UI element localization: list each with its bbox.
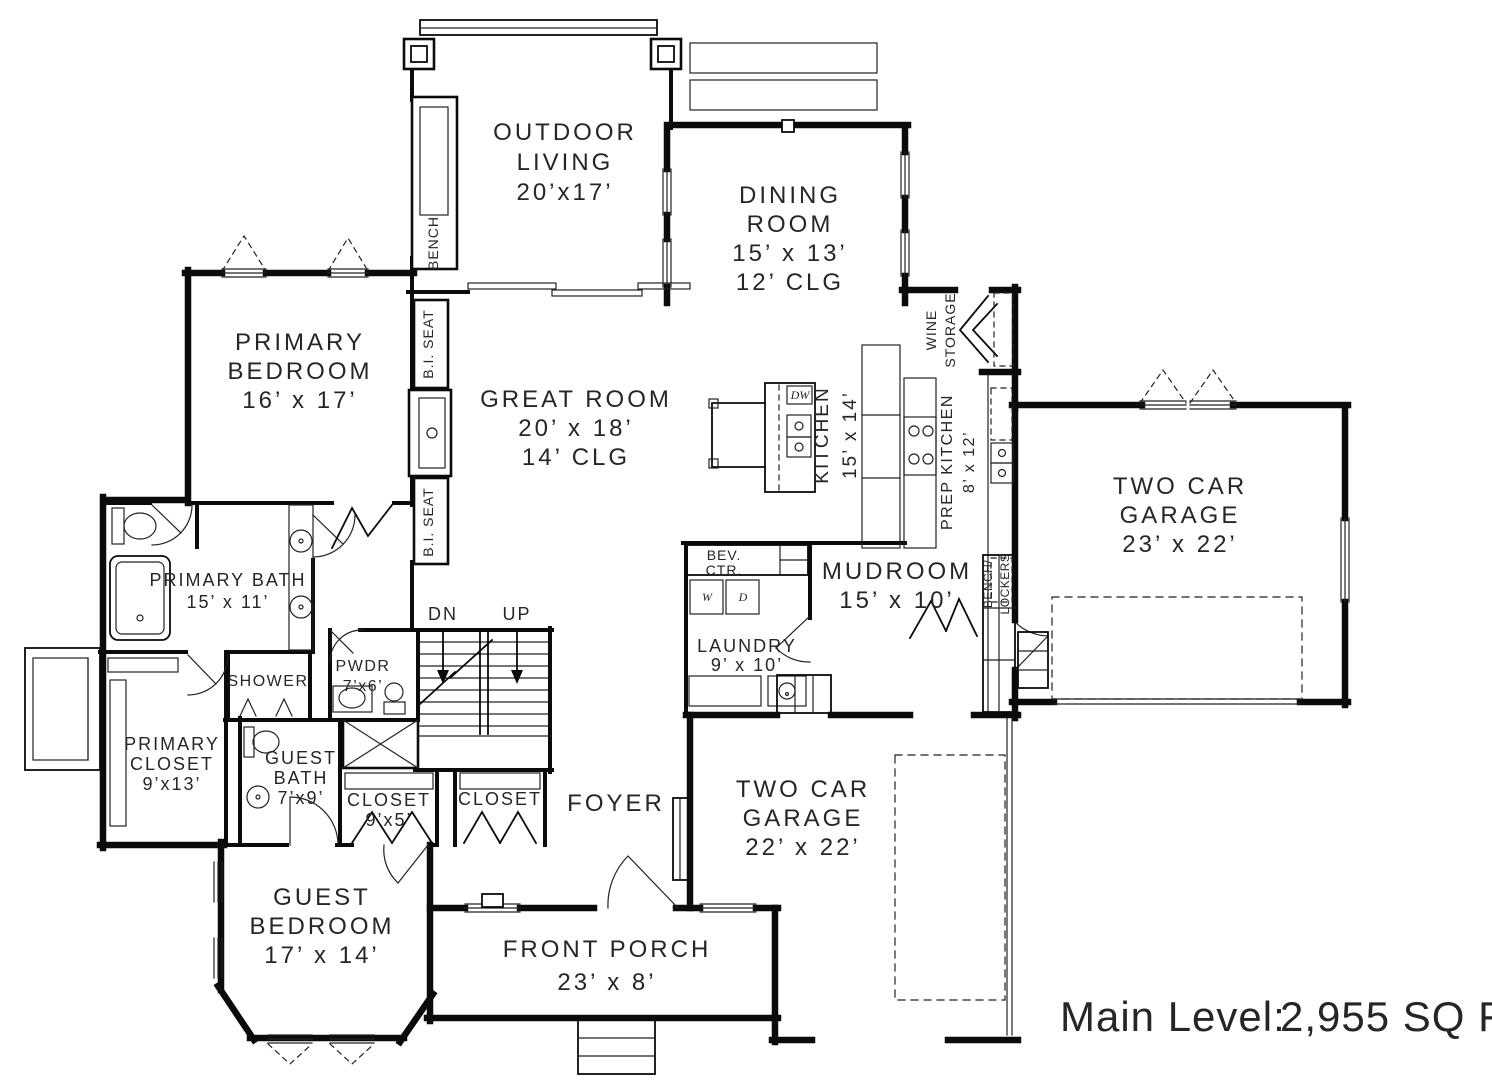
garage-door-track-front [895, 755, 1005, 1000]
svg-text:CTR.: CTR. [706, 562, 743, 578]
label-great-room: GREAT ROOM [480, 386, 672, 413]
svg-text:17’ x 14’: 17’ x 14’ [264, 942, 380, 969]
label-bench: BENCH [425, 216, 441, 270]
porch-steps [578, 1020, 655, 1074]
label-dryer: D [738, 590, 748, 604]
label-washer: W [702, 590, 713, 604]
dining-post [782, 120, 794, 132]
svg-text:BEDROOM: BEDROOM [249, 913, 394, 940]
svg-text:7’x6’: 7’x6’ [343, 678, 383, 695]
up-arrow [511, 670, 523, 684]
svg-text:15’ x 14’: 15’ x 14’ [840, 391, 861, 479]
stairs [418, 630, 550, 736]
main-level-label: Main Level: [1060, 993, 1286, 1040]
svg-text:20’ x 18’: 20’ x 18’ [518, 415, 634, 442]
label-primary-closet: PRIMARY [124, 734, 220, 754]
label-primary-bedroom: PRIMARY [235, 329, 365, 356]
garage-doors [895, 597, 1302, 1035]
covered-deck [690, 43, 877, 110]
porch-post [482, 894, 503, 907]
kitchen-cabinets [862, 345, 900, 548]
svg-text:9’ x 10’: 9’ x 10’ [711, 655, 783, 675]
svg-text:CLOSET: CLOSET [130, 754, 214, 774]
floor-plan-drawing: OUTDOOR LIVING 20’x17’ DINING ROOM 15’ x… [0, 0, 1492, 1084]
label-laundry: LAUNDRY [697, 636, 797, 656]
kitchen-sink [787, 415, 811, 437]
label-bench-lockers: BENCH/ [981, 560, 995, 609]
label-front-porch: FRONT PORCH [503, 936, 712, 963]
svg-text:7’x9’: 7’x9’ [277, 788, 324, 808]
svg-text:ROOM: ROOM [747, 211, 834, 238]
label-closet-guest: CLOSET [347, 790, 431, 810]
dn-arrow [437, 670, 449, 684]
label-outdoor-living: OUTDOOR [493, 119, 637, 146]
wine-storage-door [960, 296, 997, 362]
label-mudroom: MUDROOM [822, 558, 972, 585]
label-bev-ctr: BEV. [707, 547, 742, 563]
svg-text:20’x17’: 20’x17’ [516, 179, 613, 206]
svg-text:STORAGE: STORAGE [942, 292, 958, 367]
label-guest-bath: GUEST [265, 748, 337, 768]
bathtub [110, 556, 170, 640]
svg-text:16’ x 17’: 16’ x 17’ [242, 387, 358, 414]
label-dining-room: DINING [739, 182, 841, 209]
label-wine-storage: WINE [923, 310, 939, 351]
label-stairs-dn: DN [428, 604, 458, 624]
label-shower: SHOWER [228, 673, 309, 690]
range [904, 417, 936, 475]
window-seat [25, 648, 100, 770]
svg-text:15’ x 11’: 15’ x 11’ [186, 592, 269, 612]
label-bi-seat-lower: B.I. SEAT [420, 487, 436, 556]
label-garage-front: TWO CAR [736, 776, 870, 803]
laundry-counter [689, 676, 761, 706]
svg-text:GARAGE: GARAGE [743, 805, 864, 832]
toilet-tank [112, 508, 124, 544]
island-seating [712, 403, 765, 467]
svg-text:9’x5’: 9’x5’ [365, 810, 412, 830]
closet-foyer-bifold [464, 812, 536, 843]
svg-text:22’ x 22’: 22’ x 22’ [745, 834, 861, 861]
label-guest-bedroom: GUEST [273, 884, 371, 911]
svg-text:15’ x 13’: 15’ x 13’ [732, 240, 848, 267]
powder-toilet [385, 683, 403, 701]
main-level-sqft: 2,955 SQ FT [1280, 993, 1492, 1040]
svg-text:GARAGE: GARAGE [1120, 502, 1241, 529]
laundry-sink [768, 676, 806, 706]
label-powder: PWDR [336, 658, 391, 675]
label-garage-right: TWO CAR [1113, 473, 1247, 500]
toilet [124, 513, 156, 539]
label-primary-bath: PRIMARY BATH [149, 570, 306, 590]
shower-entry [240, 699, 292, 716]
svg-text:8’ x 12’: 8’ x 12’ [961, 431, 978, 493]
svg-text:BATH: BATH [274, 768, 329, 788]
guest-sink [247, 786, 269, 808]
svg-text:BEDROOM: BEDROOM [227, 358, 372, 385]
svg-text:LIVING: LIVING [517, 149, 614, 176]
label-bi-seat-upper: B.I. SEAT [420, 309, 436, 378]
label-stairs-up: UP [502, 604, 531, 624]
label-foyer: FOYER [567, 790, 665, 817]
floor-plan-page: OUTDOOR LIVING 20’x17’ DINING ROOM 15’ x… [0, 0, 1492, 1084]
svg-text:23’ x 8’: 23’ x 8’ [557, 969, 656, 996]
garage-door-track-right [1052, 597, 1302, 699]
prep-sink [991, 443, 1013, 463]
label-kitchen: KITCHEN [812, 386, 833, 483]
svg-text:LOCKERS: LOCKERS [998, 554, 1012, 615]
svg-text:9’x13’: 9’x13’ [142, 774, 201, 794]
svg-text:23’ x 22’: 23’ x 22’ [1122, 531, 1238, 558]
label-dishwasher: DW [790, 388, 811, 402]
svg-text:12’ CLG: 12’ CLG [736, 269, 844, 296]
label-closet-foyer: CLOSET [458, 789, 542, 809]
svg-text:15’ x 10’: 15’ x 10’ [839, 587, 955, 614]
label-prep-kitchen: PREP KITCHEN [939, 394, 956, 530]
svg-text:14’ CLG: 14’ CLG [522, 444, 630, 471]
